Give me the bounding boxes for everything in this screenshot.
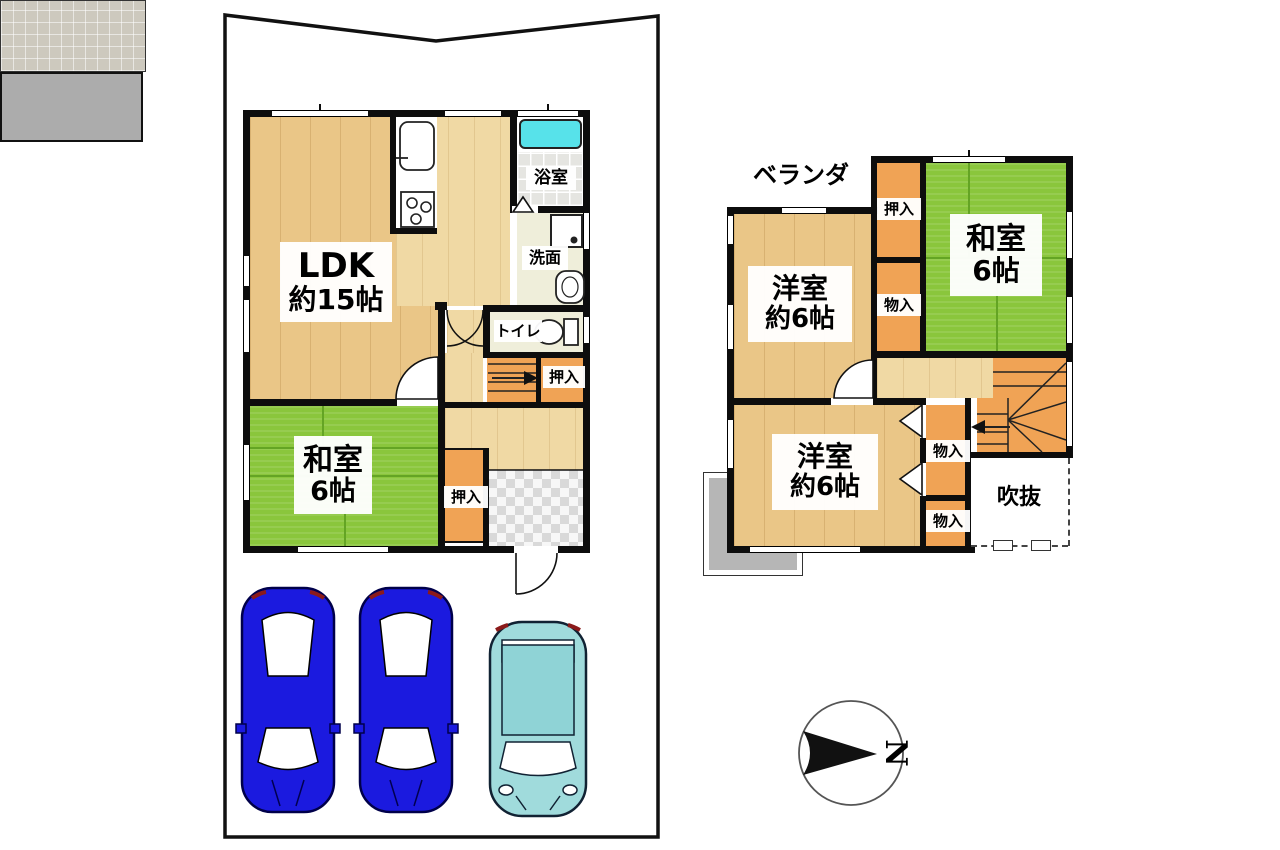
room-label-western-lower: 洋室 約6帖 [772,434,878,510]
window [727,305,734,349]
closet-label: 押入 [543,366,585,388]
storage-label: 物入 [926,440,970,462]
window [782,207,826,214]
site-boundary [0,0,1280,850]
window [727,420,734,468]
room-label-washroom: 洗面 [522,246,568,270]
window [243,445,250,500]
closet-label: 押入 [877,198,921,220]
wall [727,398,926,405]
door-gap [831,398,873,405]
wall [536,355,541,402]
void-label: 吹抜 [988,484,1050,512]
void-dashed-right [1068,458,1070,546]
veranda-label: ベランダ [746,158,856,192]
room-name: 和室 [966,223,1026,256]
room-label-western-upper: 洋室 約6帖 [748,266,852,342]
room-name: 和室 [303,444,363,477]
floor-plan: N LDK 約15帖 和室 6帖 浴室 洗面 トイレ 押入 押入 ベランダ 洋室… [0,0,1280,850]
wall [920,495,971,501]
wall [871,257,926,263]
stairs-2f-lower [977,398,1066,452]
room-label-bath: 浴室 [526,166,576,190]
window [445,110,501,117]
wall [871,351,1073,358]
window [727,216,734,244]
wall [483,305,490,353]
window-tick [319,104,321,110]
hall-mid [445,353,483,405]
wall [435,302,447,310]
hall-corridor [447,310,483,353]
door-gap [514,546,558,553]
void-dashed-bottom [971,545,1068,547]
room-name: 洋室 [797,442,853,473]
window-tick [547,104,549,110]
window-tick [968,150,970,156]
stairs-1f [487,355,536,402]
door-gap [920,463,926,496]
room-area: 約6帖 [790,473,860,502]
window [583,213,590,249]
room-name: LDK [298,248,374,285]
storage-label: 物入 [926,510,970,532]
wall [390,228,437,234]
window [243,300,250,352]
wall [510,110,517,213]
room-name: 洋室 [772,274,828,305]
window [1066,362,1073,446]
wall [727,207,734,553]
door-gap [920,405,926,438]
wall [438,402,590,408]
window [933,156,1005,163]
window [518,110,578,117]
window [272,110,368,117]
window [298,546,388,553]
genkan-entry [488,470,583,546]
closet-label: 押入 [444,486,488,508]
void-marker [1031,540,1051,551]
window [750,546,860,553]
wall [965,452,1073,458]
bath-tub-deck [517,117,583,152]
wall [438,310,445,553]
door-gap [397,399,438,406]
room-area: 6帖 [972,256,1019,287]
room-area: 6帖 [310,477,356,507]
room-label-toilet: トイレ [494,320,542,342]
room-area: 約6帖 [765,305,835,334]
door-gap [512,206,538,213]
wall [390,113,396,234]
window [1066,212,1073,258]
window [1066,297,1073,343]
kitchen-counter [396,117,437,228]
room-label-washitsu-1f: 和室 6帖 [294,436,372,514]
room-area: 約15帖 [289,285,384,316]
room-label-ldk: LDK 約15帖 [280,242,392,322]
window [583,317,590,343]
window [243,256,250,286]
wall [483,305,590,312]
hall-2f [877,358,993,398]
room-label-washitsu-2f: 和室 6帖 [950,214,1042,296]
void-marker [993,540,1013,551]
stairs-2f-upper [993,358,1066,398]
storage-label: 物入 [877,294,921,316]
